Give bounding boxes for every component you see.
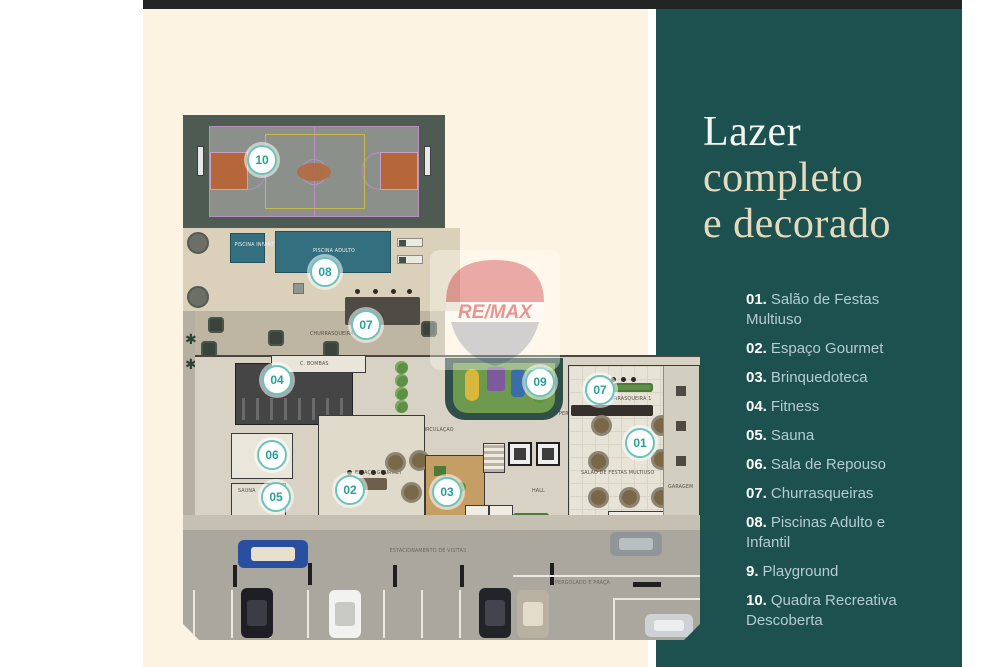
sun-lounger-icon: [397, 255, 423, 264]
stall-line: [613, 598, 615, 640]
court-surface: [209, 126, 419, 217]
brochure-page: Lazer completo e decorado 01.Salão de Fe…: [0, 0, 1000, 667]
barbecue-2-label: CHURRASQUEIRA 2: [310, 331, 358, 337]
umbrella-icon: [208, 317, 224, 333]
hedge: [613, 383, 653, 392]
legend-item: 06.Sala de Repouso: [746, 455, 918, 475]
terrace-table-icon: [676, 386, 686, 396]
legend-item: 03.Brinquedoteca: [746, 368, 918, 388]
pump-room-label: C. BOMBAS: [300, 361, 329, 367]
deck-umbrella-table-icon: [187, 232, 209, 254]
page-title: Lazer completo e decorado: [703, 109, 891, 247]
stall-line: [613, 598, 700, 600]
bush-icon: [395, 387, 408, 400]
car-icon: [645, 614, 693, 637]
parking-label: ESTACIONAMENTO DE VISITAS: [384, 548, 472, 554]
tree-icon: ✱: [185, 333, 197, 347]
title-line-1: Lazer: [703, 109, 891, 155]
barbecue-terrace: CHURRASQUEIRA 2: [183, 311, 445, 360]
gourmet-counter: [343, 478, 387, 490]
car-icon: [610, 532, 662, 556]
lane-marker: [460, 565, 464, 587]
hall-label: HALL: [532, 488, 545, 494]
floor-plan: PISCINA INFANTIL PISCINA ADULTO CHURRASQ…: [183, 115, 700, 640]
barbecue-1-label: CHURRASQUEIRA 1: [603, 396, 651, 402]
dining-table-icon: [385, 452, 406, 473]
slide-icon: [511, 369, 525, 397]
garage-label: GARAGEM: [668, 484, 693, 490]
gourmet-room: ESPAÇO GOURMET: [318, 415, 425, 529]
terrace-table-icon: [676, 421, 686, 431]
car-icon: [329, 590, 361, 638]
lane-marker: [233, 565, 237, 587]
pergola-label: PERGOLADO E PRAÇA: [555, 580, 610, 586]
court-key-right: [380, 152, 418, 190]
party-table-icon: [619, 487, 640, 508]
stall-line: [383, 590, 385, 638]
kids-pool-label: PISCINA INFANTIL: [235, 242, 263, 248]
top-border-bar: [143, 0, 962, 9]
court-key-left: [210, 152, 248, 190]
stairs-icon: [483, 443, 505, 473]
remax-balloon-icon: RE/MAX: [430, 250, 560, 370]
remax-watermark: RE/MAX: [430, 250, 560, 370]
barbecue-counter-2: [345, 297, 420, 325]
deck-fixture: [293, 283, 304, 294]
stall-line: [459, 590, 461, 638]
legend-item: 07.Churrasqueiras: [746, 484, 918, 504]
stall-line: [421, 590, 423, 638]
rest-room: [231, 433, 293, 479]
playground-ground: [453, 363, 555, 413]
kids-pool: PISCINA INFANTIL: [230, 233, 265, 263]
play-tower-icon: [487, 367, 505, 391]
legend-item: 04.Fitness: [746, 397, 918, 417]
stall-line: [193, 590, 195, 638]
title-line-3: e decorado: [703, 201, 891, 247]
legend-item: 05.Sauna: [746, 426, 918, 446]
court-arc-left: [248, 152, 266, 190]
dining-table-icon: [401, 482, 422, 503]
barbecue-counter-1: [571, 405, 653, 416]
umbrella-icon: [268, 330, 284, 346]
sidewalk: [183, 515, 700, 530]
court-center-logo: [297, 163, 331, 181]
elevator-icon: [536, 442, 560, 466]
basketball-hoop-icon: [197, 146, 204, 176]
title-line-2: completo: [703, 155, 891, 201]
lane-marker: [550, 563, 554, 585]
pump-room: C. BOMBAS: [271, 355, 366, 373]
stall-line: [513, 575, 700, 577]
deck-umbrella-table-icon: [187, 286, 209, 308]
toy-icon: [456, 482, 466, 492]
legend-item: 9.Playground: [746, 562, 918, 582]
lane-marker: [308, 563, 312, 585]
car-icon: [238, 540, 308, 568]
adult-pool-label: PISCINA ADULTO: [288, 248, 381, 254]
legend-item: 01.Salão de Festas Multiuso: [746, 290, 918, 330]
visitor-parking: ESTACIONAMENTO DE VISITAS PERGOLADO E PR…: [183, 530, 700, 640]
elevator-icon: [508, 442, 532, 466]
wheel-stop: [633, 582, 661, 587]
lane-marker: [393, 565, 397, 587]
sauna-label: SAUNA: [238, 488, 256, 494]
party-table-icon: [591, 415, 612, 436]
bush-icon: [395, 374, 408, 387]
amenities-legend: 01.Salão de Festas Multiuso 02.Espaço Go…: [746, 290, 918, 640]
stall-line: [231, 590, 233, 638]
party-table-icon: [588, 451, 609, 472]
outdoor-terrace: GARAGEM: [663, 366, 699, 529]
car-icon: [241, 588, 273, 638]
toy-icon: [434, 466, 446, 476]
bush-icon: [395, 400, 408, 413]
legend-item: 08.Piscinas Adulto e Infantil: [746, 513, 918, 553]
recreational-court: [183, 115, 445, 228]
legend-item: 10.Quadra Recreativa Descoberta: [746, 591, 918, 631]
slide-icon: [465, 369, 479, 401]
play-tube-icon: [533, 375, 546, 403]
stall-line: [307, 590, 309, 638]
sun-lounger-icon: [397, 238, 423, 247]
party-hall-label: SALÃO DE FESTAS MULTIUSO: [581, 470, 654, 476]
bush-icon: [395, 361, 408, 374]
basketball-hoop-icon: [424, 146, 431, 176]
legend-item: 02.Espaço Gourmet: [746, 339, 918, 359]
party-table-icon: [588, 487, 609, 508]
car-icon: [479, 588, 511, 638]
circulation-label: CIRCULAÇÃO: [421, 427, 454, 433]
car-icon: [517, 590, 549, 638]
legend-panel: Lazer completo e decorado 01.Salão de Fe…: [656, 9, 962, 667]
remax-brand-text: RE/MAX: [458, 302, 533, 323]
terrace-table-icon: [676, 456, 686, 466]
adult-pool: PISCINA ADULTO: [275, 231, 391, 273]
